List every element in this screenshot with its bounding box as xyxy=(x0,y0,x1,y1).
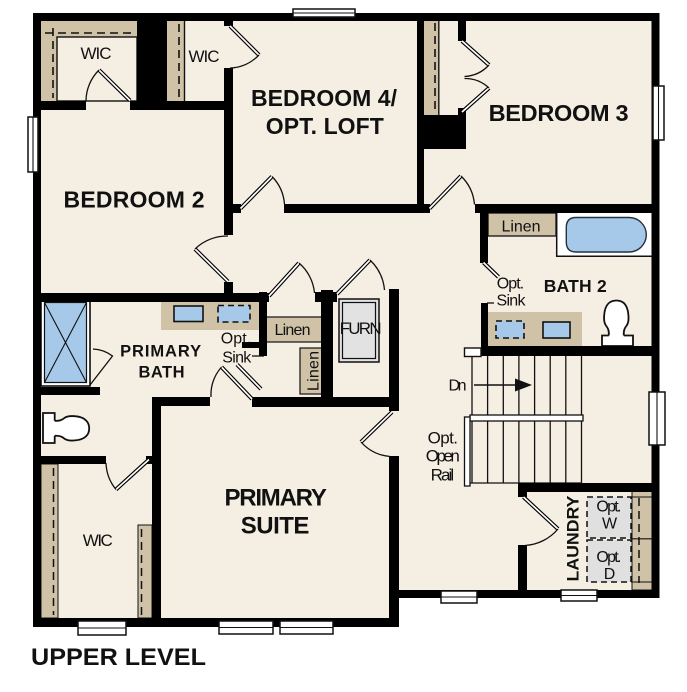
svg-text:SUITE: SUITE xyxy=(241,513,310,540)
svg-text:Opt.: Opt. xyxy=(497,275,525,292)
svg-text:Linen: Linen xyxy=(502,219,541,236)
svg-text:Open: Open xyxy=(426,446,460,465)
svg-text:W: W xyxy=(602,516,618,533)
svg-text:Sink: Sink xyxy=(222,349,252,366)
svg-text:OPT. LOFT: OPT. LOFT xyxy=(266,113,384,139)
svg-text:PRIMARY: PRIMARY xyxy=(120,343,201,361)
svg-text:BATH: BATH xyxy=(139,364,185,382)
svg-text:Rail: Rail xyxy=(431,465,455,484)
svg-text:Opt.: Opt. xyxy=(428,429,458,448)
svg-text:WIC: WIC xyxy=(189,47,220,66)
svg-text:BEDROOM 4/: BEDROOM 4/ xyxy=(251,85,398,111)
svg-text:WIC: WIC xyxy=(81,44,112,63)
svg-text:BEDROOM 2: BEDROOM 2 xyxy=(64,187,205,213)
svg-text:FURN: FURN xyxy=(340,319,382,338)
svg-text:Opt.: Opt. xyxy=(221,331,252,348)
svg-text:Opt.: Opt. xyxy=(596,549,621,566)
svg-text:Linen: Linen xyxy=(275,322,311,339)
svg-text:WIC: WIC xyxy=(83,531,113,550)
svg-text:BATH 2: BATH 2 xyxy=(544,276,607,296)
svg-text:Opt.: Opt. xyxy=(596,499,621,516)
svg-text:Dn: Dn xyxy=(449,378,467,395)
svg-text:UPPER LEVEL: UPPER LEVEL xyxy=(31,644,206,671)
svg-text:LAUNDRY: LAUNDRY xyxy=(564,495,583,582)
svg-text:Linen: Linen xyxy=(306,351,323,391)
svg-text:BEDROOM 3: BEDROOM 3 xyxy=(489,100,629,126)
svg-text:PRIMARY: PRIMARY xyxy=(225,485,327,512)
svg-text:Sink: Sink xyxy=(497,292,527,309)
svg-text:D: D xyxy=(604,566,616,583)
